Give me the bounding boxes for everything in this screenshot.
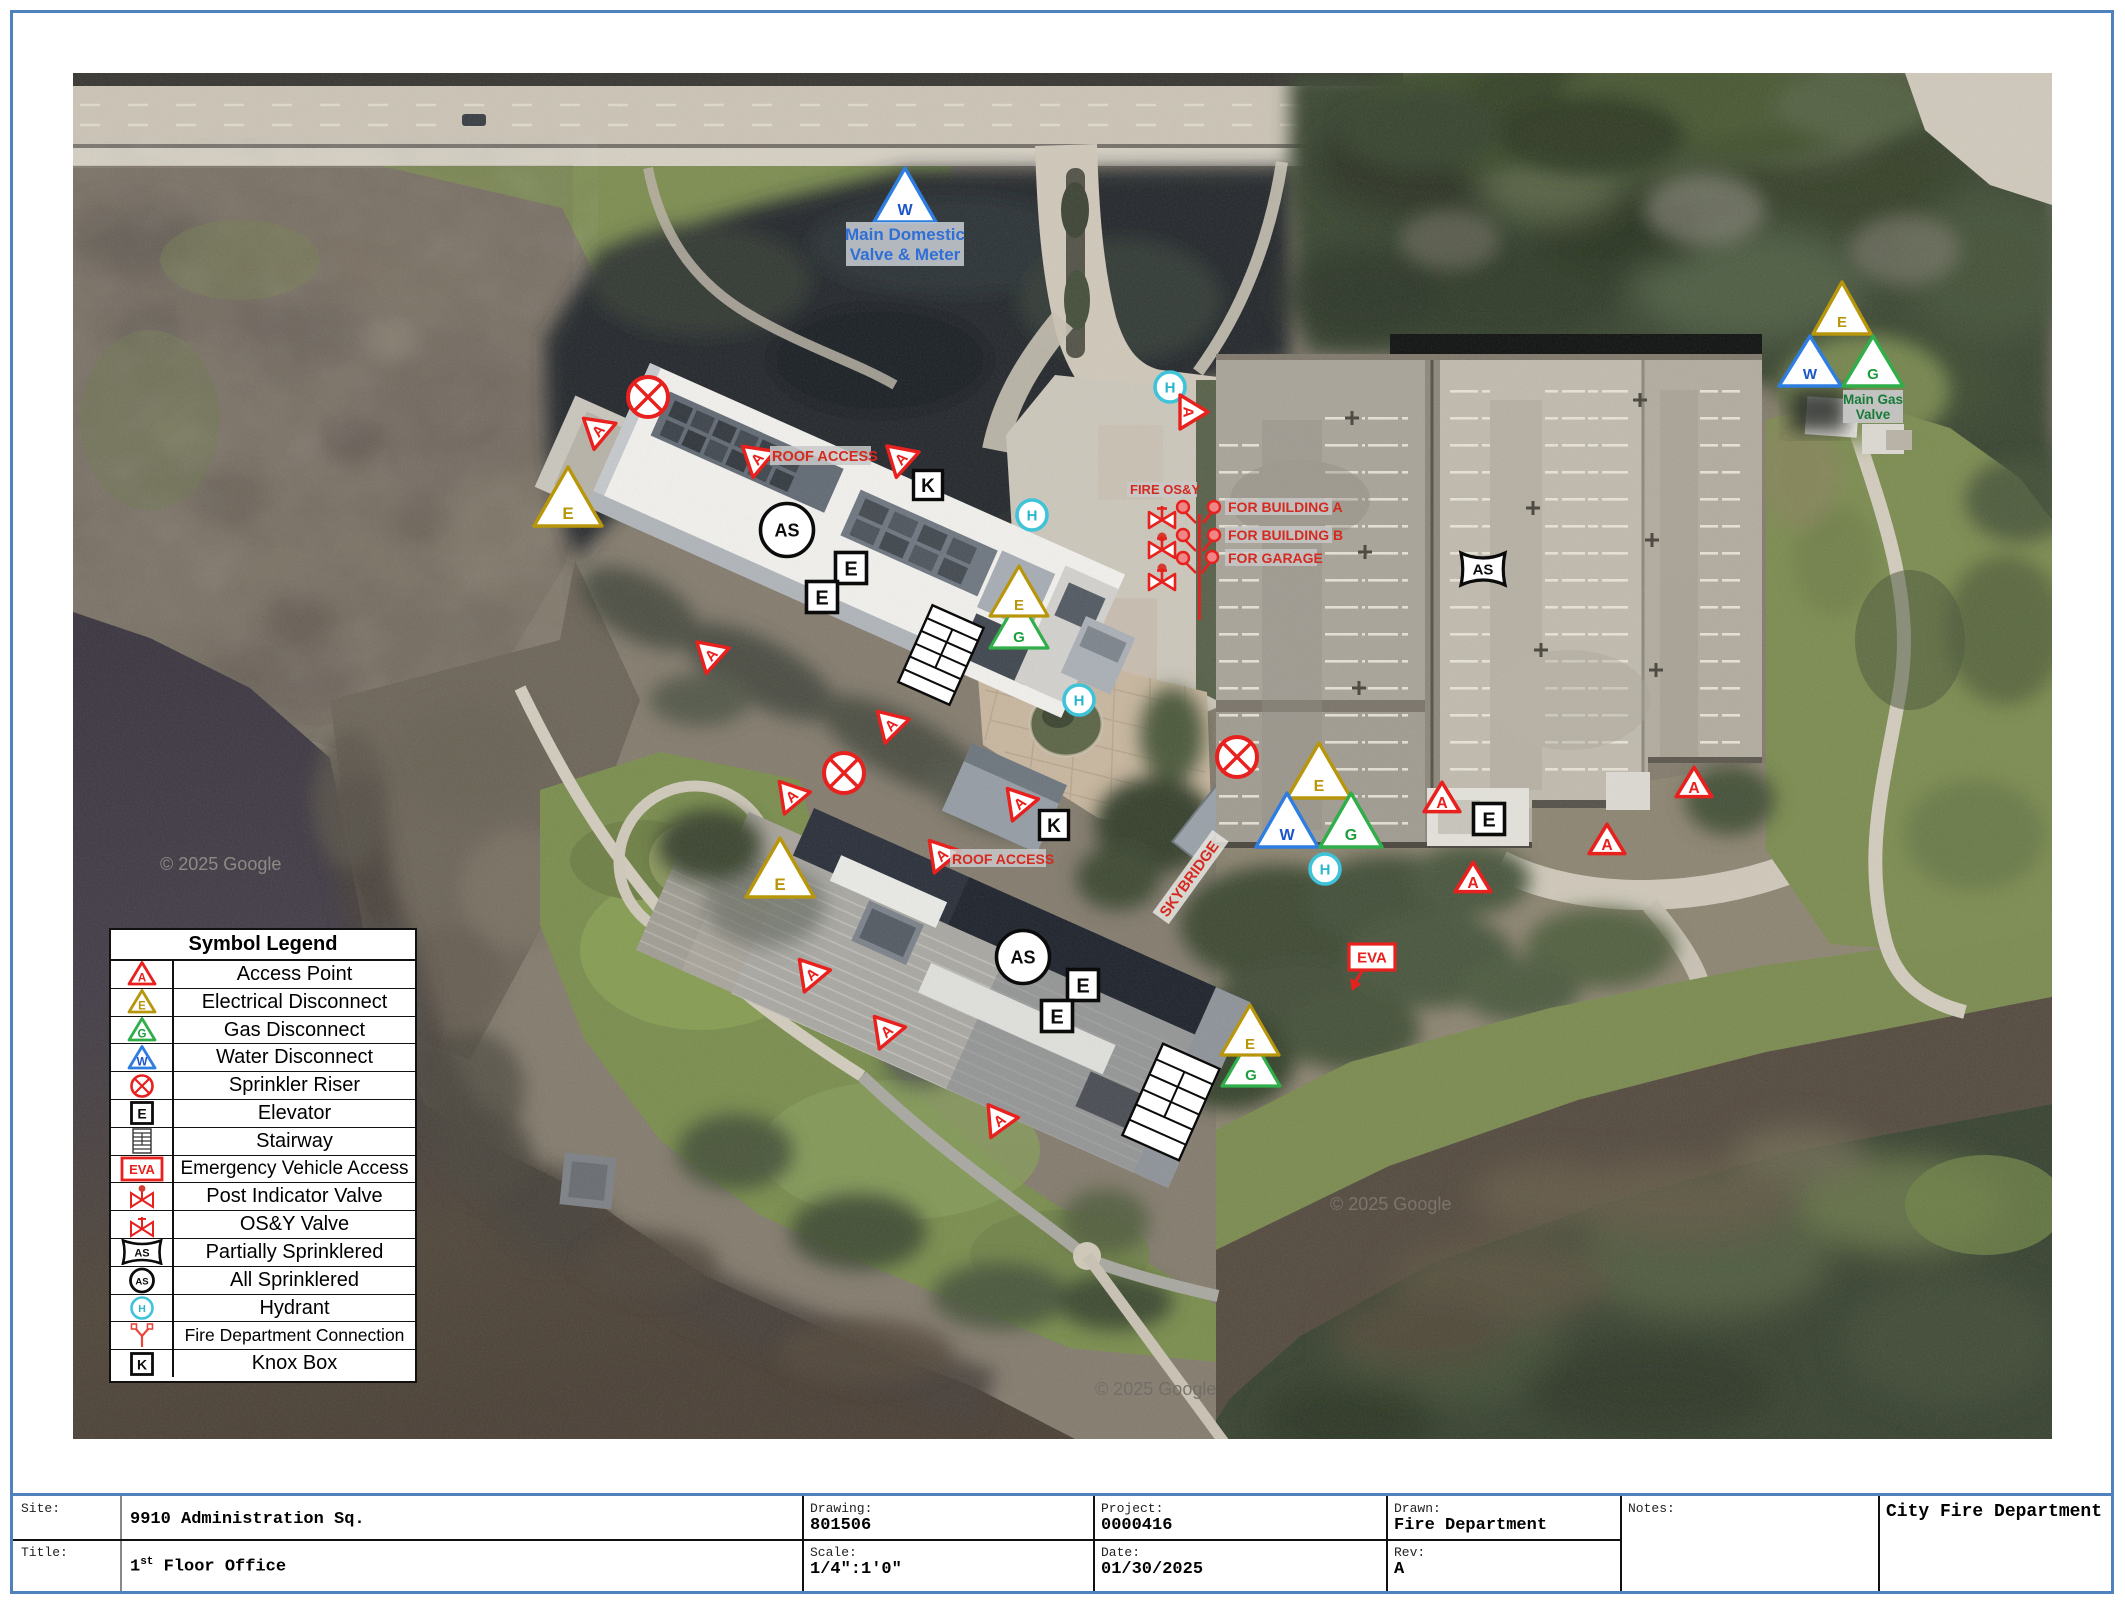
svg-text:G: G — [1013, 629, 1025, 646]
svg-text:E: E — [137, 1106, 146, 1122]
svg-text:Main Gas: Main Gas — [1843, 392, 1903, 407]
svg-text:E: E — [138, 1001, 146, 1013]
svg-text:W: W — [136, 1056, 147, 1068]
svg-text:E: E — [1014, 597, 1024, 614]
svg-text:Valve: Valve — [1856, 407, 1891, 422]
svg-text:ROOF ACCESS: ROOF ACCESS — [772, 449, 878, 465]
svg-text:G: G — [1867, 366, 1879, 383]
svg-text:E: E — [774, 875, 785, 894]
svg-text:ROOF ACCESS: ROOF ACCESS — [952, 851, 1054, 867]
svg-text:EVA: EVA — [129, 1162, 155, 1177]
svg-text:A: A — [137, 973, 145, 985]
svg-text:W: W — [897, 202, 913, 219]
svg-text:FOR BUILDING A: FOR BUILDING A — [1228, 499, 1343, 515]
svg-text:W: W — [1279, 827, 1295, 844]
svg-text:E: E — [1245, 1036, 1255, 1053]
svg-text:E: E — [1314, 778, 1325, 795]
svg-text:W: W — [1803, 366, 1818, 383]
svg-text:G: G — [1245, 1067, 1257, 1084]
svg-text:G: G — [1345, 827, 1357, 844]
svg-text:E: E — [1837, 314, 1847, 331]
svg-text:Main Domestic: Main Domestic — [845, 225, 965, 244]
svg-text:G: G — [137, 1028, 146, 1040]
svg-text:AS: AS — [134, 1248, 149, 1260]
svg-text:K: K — [136, 1356, 146, 1372]
svg-text:FOR BUILDING B: FOR BUILDING B — [1228, 527, 1343, 543]
svg-text:Valve & Meter: Valve & Meter — [850, 245, 961, 264]
svg-text:FIRE OS&Y: FIRE OS&Y — [1130, 482, 1200, 497]
svg-text:H: H — [138, 1303, 146, 1315]
svg-text:AS: AS — [135, 1276, 148, 1287]
svg-text:E: E — [562, 504, 573, 523]
svg-text:FOR GARAGE: FOR GARAGE — [1228, 550, 1323, 566]
